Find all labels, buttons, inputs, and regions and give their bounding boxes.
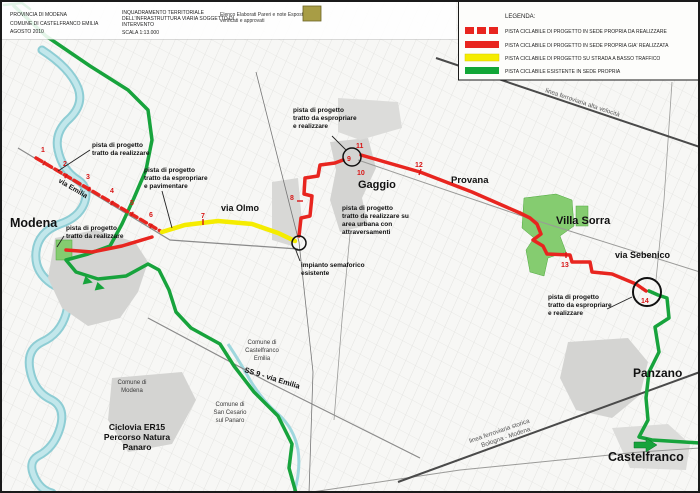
segment-number: 9 xyxy=(347,156,351,163)
label-via-sebenico: via Sebenico xyxy=(615,250,671,260)
annotation-line: attraversamenti xyxy=(342,229,391,236)
annotation-line: impianto semaforico xyxy=(301,262,365,269)
segment-number: 1 xyxy=(41,147,45,154)
label-comune-modena: Comune di xyxy=(117,380,146,386)
label-comune-castelfranco: Emilia xyxy=(254,356,271,362)
label-comune-san-cesario: Comune di xyxy=(215,402,244,408)
annotation-line: pista di progetto xyxy=(342,205,393,212)
legend-swatch-red-dashed xyxy=(465,27,498,34)
annotation-line: area urbana con xyxy=(342,221,392,228)
annotation-line: pista di progetto xyxy=(92,142,143,149)
legend-swatch-red-solid xyxy=(465,41,499,48)
segment-number: 4 xyxy=(110,188,114,195)
title-center-line3: INTERVENTO xyxy=(122,22,154,28)
legend: LEGENDA: PISTA CICLABILE DI PROGETTO IN … xyxy=(459,1,700,80)
label-modena: Modena xyxy=(10,216,58,230)
label-gaggio: Gaggio xyxy=(358,179,396,191)
annotation-line: pista di progetto xyxy=(293,107,344,114)
legend-item-label: PISTA CICLABILE ESISTENTE IN SEDE PROPRI… xyxy=(505,69,621,75)
label-comune-castelfranco: Comune di xyxy=(247,340,276,346)
annotation-line: tratto da espropriare xyxy=(144,175,208,182)
legend-swatch-green xyxy=(465,67,499,74)
annotation-line: pista di progetto xyxy=(144,167,195,174)
label-ciclovia-line3: Panaro xyxy=(123,442,152,452)
segment-number: 8 xyxy=(290,195,294,202)
label-comune-san-cesario: San Cesario xyxy=(213,410,247,416)
annotation-line: tratto da espropriare xyxy=(548,302,612,309)
annotation-line: esistente xyxy=(301,270,330,277)
label-castelfranco: Castelfranco xyxy=(608,450,684,464)
annotation-line: e realizzare xyxy=(548,310,583,317)
title-block: PROVINCIA DI MODENA COMUNE DI CASTELFRAN… xyxy=(2,2,458,40)
segment-number: 14 xyxy=(641,298,649,305)
label-comune-modena: Modena xyxy=(121,388,143,394)
annotation-realizzare-modena: pista di progetto tratto da realizzare xyxy=(66,225,124,240)
legend-item-label: PISTA CICLABILE DI PROGETTO IN SEDE PROP… xyxy=(505,43,669,49)
segment-number: 10 xyxy=(357,170,365,177)
legend-item-label: PISTA CICLABILE DI PROGETTO SU STRADA A … xyxy=(505,56,660,62)
segment-number: 12 xyxy=(415,162,423,169)
legend-title: LEGENDA: xyxy=(505,14,536,20)
segment-number: 7 xyxy=(201,213,205,220)
map-sheet: 1 2 3 4 5 6 7 8 9 10 11 12 13 14 Modena … xyxy=(0,0,700,493)
legend-item-label: PISTA CICLABILE DI PROGETTO IN SEDE PROP… xyxy=(505,29,667,35)
annotation-realizzare-nw: pista di progetto tratto da realizzare xyxy=(92,142,150,157)
label-ciclovia-line2: Percorso Natura xyxy=(104,432,170,442)
annotation-line: tratto da realizzare xyxy=(92,150,150,157)
label-villa-sorra: Villa Sorra xyxy=(556,215,611,227)
title-left-line2: COMUNE DI CASTELFRANCO EMILIA xyxy=(10,21,99,27)
legend-swatch-yellow xyxy=(465,54,499,61)
label-via-olmo: via Olmo xyxy=(221,203,260,213)
title-scale: SCALA 1:13.000 xyxy=(122,30,159,36)
title-right-line2: verificati e approvati xyxy=(220,18,264,24)
label-comune-castelfranco: Castelfranco xyxy=(245,348,279,354)
annotation-line: e realizzare xyxy=(293,123,328,130)
label-panzano: Panzano xyxy=(633,366,682,380)
annotation-line: tratto da espropriare xyxy=(293,115,357,122)
segment-number: 13 xyxy=(561,262,569,269)
segment-number: 6 xyxy=(149,212,153,219)
annotation-line: tratto da realizzare xyxy=(66,233,124,240)
label-ciclovia-line1: Ciclovia ER15 xyxy=(109,422,165,432)
annotation-line: pista di progetto xyxy=(548,294,599,301)
annotation-line: e pavimentare xyxy=(144,183,188,190)
annotation-line: pista di progetto xyxy=(66,225,117,232)
territorial-map: 1 2 3 4 5 6 7 8 9 10 11 12 13 14 Modena … xyxy=(0,0,700,493)
label-comune-san-cesario: sul Panaro xyxy=(216,418,245,424)
stamp-icon xyxy=(303,6,321,21)
segment-number: 5 xyxy=(130,200,134,207)
title-left-line1: PROVINCIA DI MODENA xyxy=(10,12,68,18)
segment-number: 3 xyxy=(86,174,90,181)
label-provana: Provana xyxy=(451,175,489,186)
title-left-line3: AGOSTO 2010 xyxy=(10,29,44,35)
segment-number: 11 xyxy=(356,143,364,150)
annotation-line: tratto da realizzare su xyxy=(342,213,409,220)
